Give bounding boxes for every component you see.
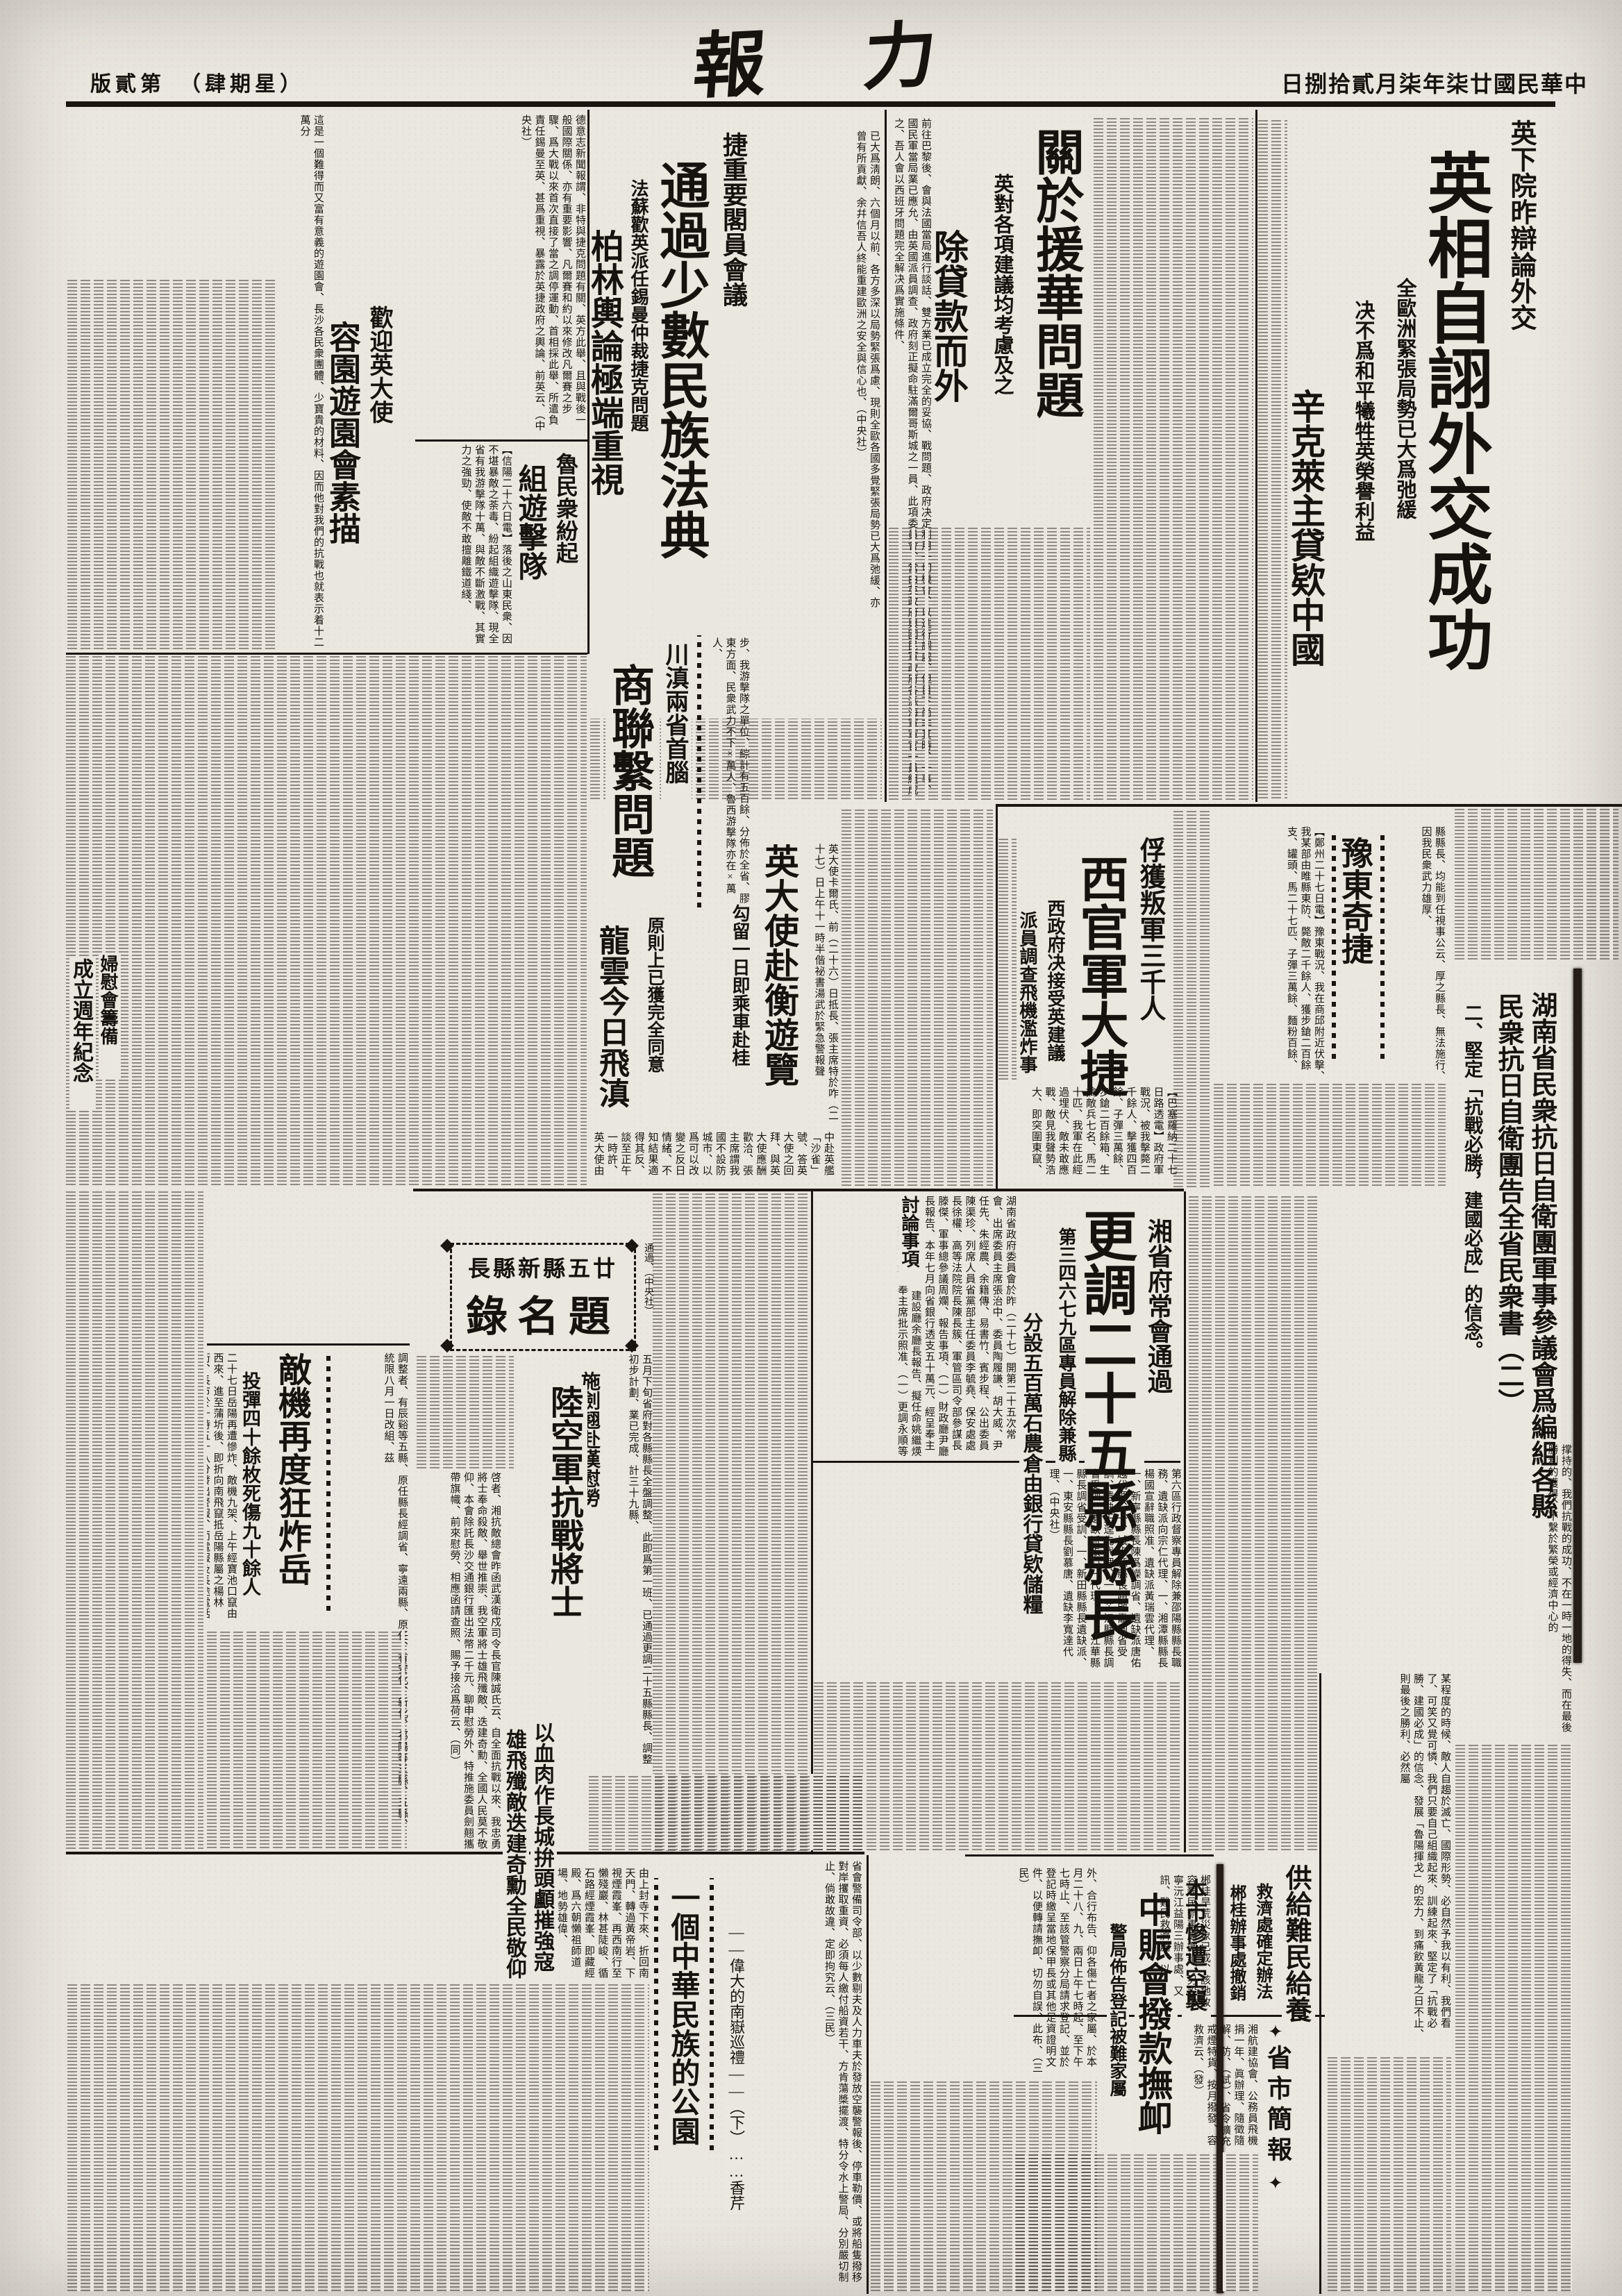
nanyue-headline: 一個中華民族的公園 xyxy=(665,1883,704,2175)
garden-headline: 容園遊園會素描 xyxy=(326,321,365,598)
masthead-title: 報 力 xyxy=(690,0,953,112)
divider xyxy=(1319,1673,1321,2294)
divider xyxy=(996,807,998,1189)
shijianqiao-body: 啓者、湘抗敵總會昨函武漢衛戍司令長官陳誠氏云、自全面抗戰以來、我忠勇將士奉命殺敵… xyxy=(417,1472,501,1850)
refugees-subhead-1: 救濟處確定辦法 xyxy=(1254,1883,1275,2008)
briefs-body: 湘航建協會、公務員飛機捐一年、眞辦理、隨徵隨解、防、（試）、省令擴充戒煙特貨、按… xyxy=(1015,2024,1258,2149)
xiguanjun-body: 【巴塞羅納二十七日路透電】政府軍戰況、被我擊斃二千餘人、擊獲四百餘、子彈三萬餘、… xyxy=(998,1087,1178,1185)
xiangsheng-subhead-1: 第三四六七九區專員解除兼縣長職 xyxy=(1055,1227,1079,1477)
uk-subhead-3: 辛克萊主貸欵中國 xyxy=(1289,389,1330,764)
garrison-notice-column: 省會警備司令部、以少數剔夫及人力車夫於發放空襲警報後、停車勒價、或將船隻撥移對岸… xyxy=(754,1861,862,2291)
yudong-headline: 豫東奇捷 xyxy=(1341,837,1378,989)
edition-label: 版貳第 （肆期星） xyxy=(90,67,305,97)
uk-body-continuation xyxy=(1094,118,1253,800)
magistrate-list-fill xyxy=(814,1680,1182,1850)
timinglu-note: 通過、（中央社） xyxy=(636,1243,654,1361)
wavy-rule xyxy=(697,635,701,907)
briefs-ornament: ✦ xyxy=(1268,2173,1283,2194)
wavy-rule xyxy=(1332,830,1336,1059)
chuandian-subhead-2: 龍雲今日飛滇 xyxy=(597,925,633,1133)
letter-section-heading: 二、堅定「抗戰必勝，建國必成」的信念。 xyxy=(1461,1003,1486,1434)
aid-headline: 關於援華問題 xyxy=(1037,127,1090,474)
refugees-headline: 供給難民給養 xyxy=(1282,1864,1315,2024)
section-rule xyxy=(965,1854,1214,1857)
ambassador-headline: 英大使赴衡遊覽 xyxy=(761,844,804,1135)
section-rule xyxy=(415,439,587,442)
xiangsheng-kicker: 湘省府常會通過 xyxy=(1146,1218,1176,1434)
funv-kicker: 婦慰會籌備 xyxy=(99,955,121,1080)
shijianqiao-fill xyxy=(417,1354,514,1468)
section-rule xyxy=(66,653,587,655)
nanyue-body: 由上封寺下來、折回南天門、轉過黃帝岩、下視煙霞峯、再西南行至懶殘巖、林甚陡峻、循… xyxy=(67,1868,649,1979)
newspaper-page: 版貳第 （肆期星） 報 力 日捌拾貳月柒年柒廿國民華中 英下院昨辯論外交 英相自… xyxy=(0,0,1622,2296)
wavy-rule xyxy=(710,1878,714,2150)
uk-subhead-1: 全歐洲緊張局勢已大爲弛緩 xyxy=(1393,278,1419,764)
header-rule xyxy=(66,101,1555,107)
yudong-side-column: 縣縣長、均能到任視事公云、厚之縣長、無法施行、因我民衆武力雄厚、 xyxy=(1389,826,1446,1083)
xiguanjun-subhead-1: 西政府决接受英建議 xyxy=(1046,899,1068,1093)
timinglu-title-top: 長縣新縣五廿 xyxy=(468,1251,618,1283)
timinglu-body-fill xyxy=(653,1191,809,1851)
garden-kicker: 歡迎英大使 xyxy=(367,305,396,458)
corner-ornament: ◆ xyxy=(440,1334,454,1355)
ambassador-body: 中赴英艦「沙雀」號、答英大使之回拜、與英大使應酬歡洽、張主席謂我國不設防城市、以… xyxy=(592,1132,835,1186)
refugees-subhead-2: 郴桂辦事處撤銷 xyxy=(1228,1884,1248,2009)
divider xyxy=(1184,1191,1186,1852)
letter-body-fill xyxy=(1455,1743,1572,2291)
shandong-headline: 組遊擊隊 xyxy=(517,464,551,603)
ambassador-subhead: 勾留一日即乘車赴桂 xyxy=(730,904,753,1126)
letter-body-2-fill xyxy=(1328,2055,1451,2291)
mid-right-fill xyxy=(1189,1194,1319,1850)
left-band-columns xyxy=(66,656,587,1185)
xiguanjun-kicker: 俘獲叛軍三千人 xyxy=(1137,837,1169,1080)
magistrate-list: 第六區行政督察專員解除兼邵陽縣縣長職務、遺缺派向宗仁代理、一、湘潭縣縣長楊國宣辭… xyxy=(814,1468,1182,1677)
czech-subhead: 法蘇歡英派任錫曼仲裁捷克問題 xyxy=(629,179,651,623)
garden-body-fill xyxy=(67,278,276,649)
divider xyxy=(587,110,590,654)
left-margin-columns xyxy=(66,1191,203,1849)
discussion-heading: 討論事項 xyxy=(898,1196,922,1286)
date-line: 日捌拾貳月柒年柒廿國民華中 xyxy=(1281,67,1580,99)
divider xyxy=(885,110,887,802)
divider xyxy=(811,1191,813,1852)
ambassador-lead-column: 英大使卡爾氏、前（二十六）日抵長、張主席特於咋（二十七）日上午十一時半偕祕書湯武… xyxy=(807,844,839,1121)
uk-headline: 英相自詡外交成功 xyxy=(1429,149,1501,795)
shandong-body: 【信陽二十六日電】落後之山東民衆、因不堪暴敵之荼毒、紛起組織遊擊隊、現全省有我游… xyxy=(417,444,512,650)
berlin-press-column: 德意志新聞報謂、非特與捷克問題有關、英方此舉、且與戰後一般國際關係、亦有重要影響… xyxy=(417,115,586,435)
briefs-body-fill xyxy=(1015,2152,1258,2291)
shijianqiao-headline: 陸空軍抗戰將士 xyxy=(547,1385,587,1711)
briefs-title: 省市簡報 xyxy=(1262,2045,1296,2170)
wavy-rule xyxy=(1380,830,1385,1059)
czech-headline: 通過少數民族法典 xyxy=(658,160,717,632)
section-rule xyxy=(207,1343,410,1346)
list-row-fill xyxy=(589,1774,863,1850)
timinglu-title-main: 錄名題 xyxy=(466,1283,620,1343)
timinglu-box: 長縣新縣五廿 錄名題 xyxy=(450,1243,636,1351)
heavy-rule xyxy=(1573,969,1582,1663)
chuandian-subhead-1: 原則上已獲完全同意 xyxy=(646,916,667,1125)
yueyang-lower-fill xyxy=(207,1632,407,1848)
czech-headline-2: 柏林輿論極端重視 xyxy=(590,229,628,708)
divider xyxy=(1255,110,1257,802)
xiguanjun-lead-col xyxy=(998,837,1017,1080)
yudong-lower-fill xyxy=(1214,1083,1446,1186)
yueyang-headline: 敵機再度狂炸岳陽 xyxy=(272,1352,315,1616)
nanyue-body-fill xyxy=(67,1982,649,2291)
uk-body-column xyxy=(1258,118,1287,798)
shandong-kicker: 魯民衆紛起 xyxy=(554,453,582,598)
uk-tail-column: 已大爲淸朗、六個月以前、各方多深以局勢緊張爲慮、現則全歐各國多覺緊張局勢已大爲弛… xyxy=(799,131,880,617)
refugees-body: 郴桂旱荒災象已成、該地收容難民辦事處撤銷、另設常寧沅江益陽三辦事處、又訊、難民救… xyxy=(1100,1875,1211,2011)
letter-body-2: 某程度的時候、敵人自趨於滅亡、國際形勢、必自然予我以有利、我們看了、可笑又覺可憐… xyxy=(1328,1673,1451,2048)
uk-kicker: 英下院昨辯論外交 xyxy=(1508,119,1540,355)
wavy-rule xyxy=(654,1878,658,2150)
briefs-ornament: ✦ xyxy=(1268,2022,1283,2043)
letter-body-1: 撑持的、我們抗戰的成功、不在一時一地的得失、而在最後勝利的獲得、不繫於繁榮或經濟… xyxy=(1455,1444,1572,1736)
aid-subhead-2: 除貸款而外 xyxy=(933,229,973,521)
chuandian-headline: 商聯繫問題 xyxy=(605,663,660,906)
letter-headline-2: 民衆抗日自衛團告全省民衆書（二） xyxy=(1493,993,1528,1479)
corner-ornament: ◆ xyxy=(440,1234,454,1255)
xiguanjun-subhead-2: 派員調查飛機濫炸事 xyxy=(1018,911,1040,1105)
mid-fill-2 xyxy=(1173,809,1211,1187)
czech-kicker: 捷重要閣員會議 xyxy=(719,132,751,361)
nanyue-subtitle: ——偉大的南嶽巡禮——（下）……香芹 xyxy=(726,1923,747,2215)
aid-subhead-1: 英對各項建議均考慮及之 xyxy=(993,174,1017,535)
guerrilla-side-column: 步、我游擊隊之單位、綜計有五百餘、分佈於全省、膠東方面、民衆武力不下×萬人、魯西… xyxy=(704,637,750,907)
mid-columns-fill xyxy=(842,809,993,1186)
aid-body-lower xyxy=(889,528,1090,800)
divider xyxy=(867,1855,869,2294)
yueyang-subhead: 投彈四十餘枚死傷九十餘人 xyxy=(240,1371,264,1607)
chuandian-kicker: 川滇兩省首腦 xyxy=(661,642,692,850)
yueyang-body: 二十七日岳陽再遭慘炸、敵機九架、上午經寶池口竄由西來、進至蒲圻後、即折向南飛竄抵… xyxy=(207,1352,237,1625)
funv-headline: 成立週年紀念 xyxy=(69,958,96,1111)
wavy-rule xyxy=(326,1352,331,1611)
section-rule xyxy=(66,1852,864,1854)
letter-top-fill xyxy=(1455,807,1619,960)
uk-subhead-2: 决不爲和平犧牲英榮譽利益 xyxy=(1351,300,1378,772)
yudong-body: 【鄭州二十七日電】豫東戰況、我在商邱附近伏擊、我某部由睢縣東防、斃敵二千餘人、獲… xyxy=(1214,826,1325,1082)
